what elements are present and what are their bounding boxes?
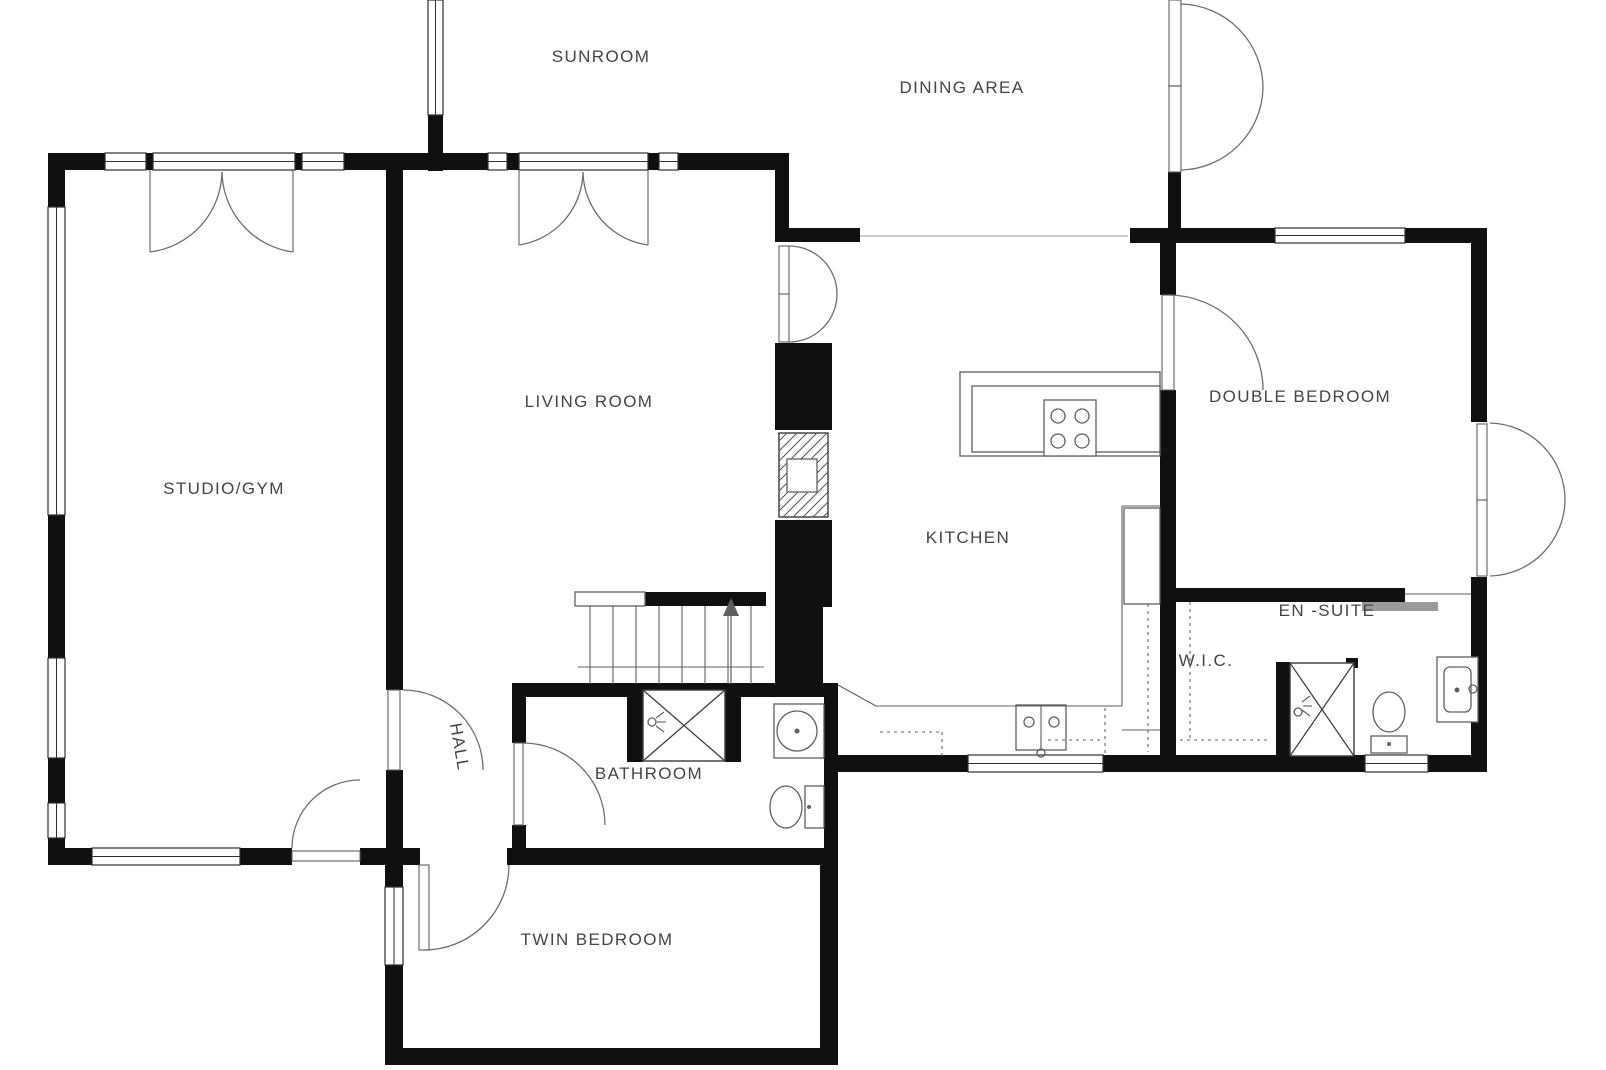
room-label-living-room: LIVING ROOM	[525, 392, 654, 412]
room-label-twin-bedroom: TWIN BEDROOM	[521, 930, 674, 950]
wall	[1130, 228, 1275, 243]
wall	[725, 683, 741, 762]
wall	[512, 683, 526, 743]
wall	[1428, 755, 1487, 772]
fixture-dot	[807, 805, 811, 809]
wall	[1471, 243, 1487, 422]
wall	[838, 755, 968, 772]
wall	[48, 848, 92, 865]
kitchen-cabinet	[1124, 508, 1160, 604]
wall	[820, 865, 838, 1048]
stove	[1044, 400, 1096, 456]
wall	[512, 848, 838, 865]
wall	[428, 115, 443, 171]
bedroom-french-door-leaf	[1477, 424, 1487, 500]
twin-bedroom-door-leaf	[419, 865, 429, 950]
room-label-bathroom: BATHROOM	[595, 764, 703, 784]
bathroom-shower	[643, 690, 725, 761]
fixture-dot	[795, 729, 800, 734]
wall	[295, 153, 302, 170]
living-room-door-leaf	[779, 246, 789, 294]
room-label-double-bedroom: DOUBLE BEDROOM	[1209, 387, 1391, 407]
wall	[648, 153, 659, 170]
double-bedroom-door-leaf	[1162, 295, 1174, 390]
wall	[1405, 228, 1487, 243]
room-label-wic: W.I.C.	[1179, 651, 1234, 671]
wall	[344, 153, 488, 170]
wall	[1276, 662, 1290, 757]
wall	[1160, 390, 1176, 772]
wall	[1160, 588, 1405, 602]
ensuite-shower	[1290, 663, 1354, 756]
wall	[48, 758, 65, 803]
living-room-door-leaf	[779, 294, 789, 342]
room-label-kitchen: KITCHEN	[926, 528, 1010, 548]
room-label-en-suite: EN -SUITE	[1279, 601, 1376, 621]
room-label-dining-area: DINING AREA	[900, 78, 1025, 98]
wall	[48, 153, 65, 207]
wall	[645, 592, 766, 606]
studio-exterior-door-leaf	[292, 851, 360, 861]
wall	[775, 607, 823, 685]
wall	[48, 515, 65, 658]
hall-door-leaf	[388, 690, 400, 770]
wall	[824, 683, 838, 865]
dining-french-door-leaf	[1169, 0, 1181, 86]
bedroom-french-door-leaf	[1477, 500, 1487, 576]
floor-plan-drawing	[0, 0, 1606, 1070]
fixture-dot	[1387, 742, 1391, 746]
room-label-sunroom: SUNROOM	[552, 47, 651, 67]
wall	[386, 770, 403, 865]
wall	[507, 848, 512, 865]
wall	[385, 865, 403, 887]
stair-rail	[575, 592, 645, 606]
wall	[1160, 243, 1176, 295]
wall	[775, 520, 832, 607]
wall	[627, 683, 643, 762]
wall	[385, 1048, 838, 1065]
wall	[403, 848, 420, 865]
floor-plan-canvas: SUNROOM DINING AREA STUDIO/GYM LIVING RO…	[0, 0, 1606, 1070]
wall	[146, 153, 153, 170]
wall	[1103, 755, 1365, 772]
dining-french-door-leaf	[1169, 86, 1181, 172]
ensuite-toilet-bowl	[1373, 692, 1405, 732]
bathroom-toilet-bowl	[770, 786, 802, 828]
wall	[386, 153, 403, 690]
fixture-dot	[1455, 688, 1460, 693]
bathroom-door-leaf	[514, 743, 523, 825]
wall	[775, 228, 860, 242]
wall	[507, 153, 519, 170]
room-label-studio-gym: STUDIO/GYM	[163, 479, 285, 499]
chimney-flue	[787, 459, 817, 492]
wall	[385, 965, 403, 1048]
wall	[775, 343, 832, 430]
wall	[240, 848, 292, 865]
wall	[678, 153, 789, 170]
